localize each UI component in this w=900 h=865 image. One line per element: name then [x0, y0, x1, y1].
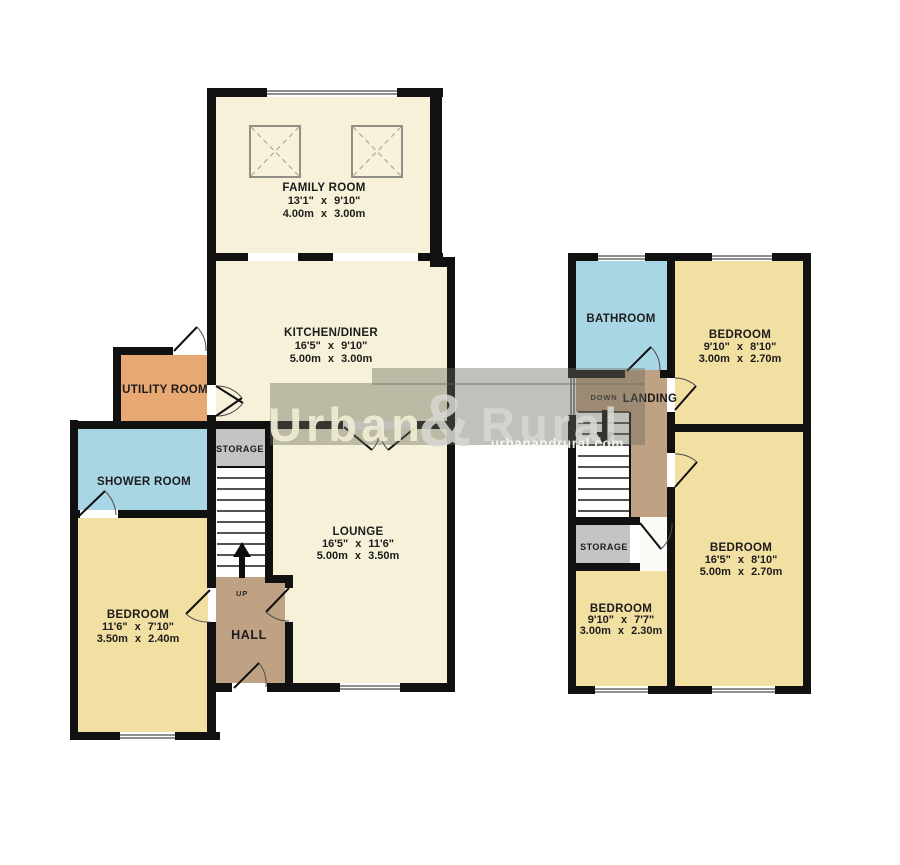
window: [598, 253, 645, 261]
label-bedroom-ground: BEDROOM: [107, 609, 169, 621]
floorplan-canvas: FAMILY ROOM 13'1" x 9'10" 4.00m x 3.00m …: [0, 0, 900, 865]
window: [712, 686, 775, 694]
label-family-room: FAMILY ROOM: [282, 182, 365, 194]
label-storage-first: STORAGE: [580, 542, 628, 552]
label-utility-room: UTILITY ROOM: [122, 384, 208, 396]
window: [267, 88, 397, 97]
label-bedroom-rear-imperial: 16'5" x 8'10": [705, 554, 778, 566]
window: [120, 732, 175, 740]
label-hall: HALL: [231, 628, 267, 642]
label-family-room-imperial: 13'1" x 9'10": [288, 195, 361, 207]
label-bedroom-rear-metric: 5.00m x 2.70m: [700, 566, 783, 578]
label-bedroom-front-imperial: 9'10" x 8'10": [704, 341, 777, 353]
skylight-icon: [250, 126, 300, 177]
label-kitchen-diner: KITCHEN/DINER: [284, 327, 378, 339]
window: [595, 686, 648, 694]
label-up: UP: [236, 589, 248, 598]
watermark-block-step: [372, 368, 645, 385]
watermark-site: urbanandrural.com: [491, 436, 624, 451]
label-family-room-metric: 4.00m x 3.00m: [283, 208, 366, 220]
watermark-ampersand-icon: &: [418, 379, 471, 462]
label-bedroom-front: BEDROOM: [709, 329, 771, 341]
label-storage-ground: STORAGE: [216, 444, 264, 454]
label-lounge-imperial: 16'5" x 11'6": [322, 538, 394, 550]
label-lounge-metric: 5.00m x 3.50m: [317, 550, 400, 562]
label-bedroom-ground-imperial: 11'6" x 7'10": [102, 621, 174, 633]
label-shower-room: SHOWER ROOM: [97, 476, 191, 488]
watermark-urban: Urban: [268, 398, 424, 451]
skylight-icon: [352, 126, 402, 177]
floorplan-svg: FAMILY ROOM 13'1" x 9'10" 4.00m x 3.00m …: [0, 0, 900, 865]
window: [340, 683, 400, 692]
label-bedroom-front-metric: 3.00m x 2.70m: [699, 353, 782, 365]
first-floor-plan: BATHROOM BEDROOM 9'10" x 8'10" 3.00m x 2…: [568, 253, 811, 694]
label-kitchen-diner-metric: 5.00m x 3.00m: [290, 353, 373, 365]
window: [712, 253, 772, 261]
label-bedroom-rear: BEDROOM: [710, 542, 772, 554]
label-kitchen-diner-imperial: 16'5" x 9'10": [295, 340, 368, 352]
door-pocket: [640, 517, 667, 571]
label-bathroom: BATHROOM: [586, 313, 655, 325]
label-bedroom-small-metric: 3.00m x 2.30m: [580, 625, 663, 637]
label-lounge: LOUNGE: [333, 526, 384, 538]
label-bedroom-ground-metric: 3.50m x 2.40m: [97, 633, 180, 645]
